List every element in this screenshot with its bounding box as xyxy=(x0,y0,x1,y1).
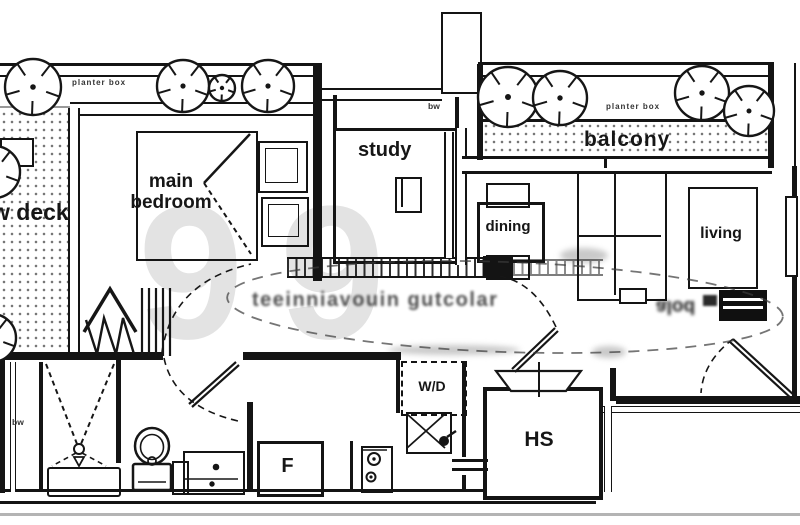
entry-thin-wall-v xyxy=(604,406,612,492)
shower-right-wall xyxy=(116,360,121,463)
deck-label: w deck xyxy=(0,200,69,225)
balcony-right-wall xyxy=(768,62,774,168)
step-wall xyxy=(610,368,616,401)
balcony-planter-bottom-line xyxy=(480,119,768,122)
wall-a xyxy=(322,88,442,101)
study-label: study xyxy=(358,139,411,161)
right-edge-line xyxy=(794,63,800,167)
planter-box-label-left: planter box xyxy=(72,79,126,88)
living-left-wall xyxy=(455,128,467,265)
sofa-icon xyxy=(577,171,667,301)
shower-icon xyxy=(46,364,114,466)
stamp-text: teeinniavouin gutcolar xyxy=(252,289,498,311)
bathroom-right-wall xyxy=(247,402,253,492)
tv-console-icon xyxy=(719,290,767,321)
right-window-panel xyxy=(785,196,798,277)
bw-right-stub xyxy=(455,97,459,130)
bedside-cabinet-inner xyxy=(268,204,299,237)
counter-divider xyxy=(350,441,353,490)
bedroom-bottom-wall-left xyxy=(0,352,163,360)
outer-left-wall xyxy=(0,360,5,493)
hs-label: HS xyxy=(483,387,595,492)
bedside-cabinet xyxy=(261,197,309,247)
main-bedroom-label: main bedroom xyxy=(112,172,230,214)
strip-right-wall xyxy=(39,362,43,492)
study-desk-line xyxy=(401,179,403,207)
vanity xyxy=(183,451,245,495)
floor-plan: 99 xyxy=(0,0,800,525)
tv-note-text: alod xyxy=(656,295,695,316)
bedroom-left-wall xyxy=(68,108,80,354)
tv-side-piece xyxy=(703,295,717,306)
bedside-cabinet-inner xyxy=(265,148,298,183)
dining-label: dining xyxy=(472,219,544,236)
wd-label: W/D xyxy=(401,361,463,412)
bedside-cabinet xyxy=(258,141,308,193)
shower-base xyxy=(47,467,121,497)
bw-label-left: bw xyxy=(12,418,24,427)
balcony-left-wall xyxy=(477,64,483,160)
hob-box xyxy=(361,446,393,493)
sofa-foot xyxy=(619,288,647,304)
smudge xyxy=(592,346,626,358)
balcony-label: balcony xyxy=(584,128,670,151)
living-bottom-wall xyxy=(616,396,800,404)
toilet-icon xyxy=(133,428,171,490)
study-desk xyxy=(395,177,422,213)
planter-box-label-right: planter box xyxy=(606,103,660,112)
smudge xyxy=(388,345,520,355)
bedroom-right-wall xyxy=(313,63,322,281)
entry-thin-wall-h xyxy=(603,406,800,413)
study-right-wall xyxy=(444,132,454,258)
bedroom-window-sill xyxy=(70,102,314,116)
planter-band-top-left xyxy=(0,63,320,77)
bw-label-top: bw xyxy=(428,102,440,111)
study-left-wall-stub xyxy=(333,95,337,130)
living-label: living xyxy=(688,225,754,243)
deck-planter-cutout xyxy=(0,138,34,167)
kitchen-sink-box xyxy=(406,412,452,454)
bedroom-bottom-wall-right xyxy=(243,352,401,360)
slider-tick xyxy=(604,156,607,168)
bottom-rule xyxy=(0,513,800,516)
sill-ext xyxy=(0,106,70,108)
fridge-label: F xyxy=(257,441,318,491)
balcony-planter-band xyxy=(478,62,772,77)
wd-left-wall xyxy=(396,357,400,413)
column xyxy=(441,12,482,94)
